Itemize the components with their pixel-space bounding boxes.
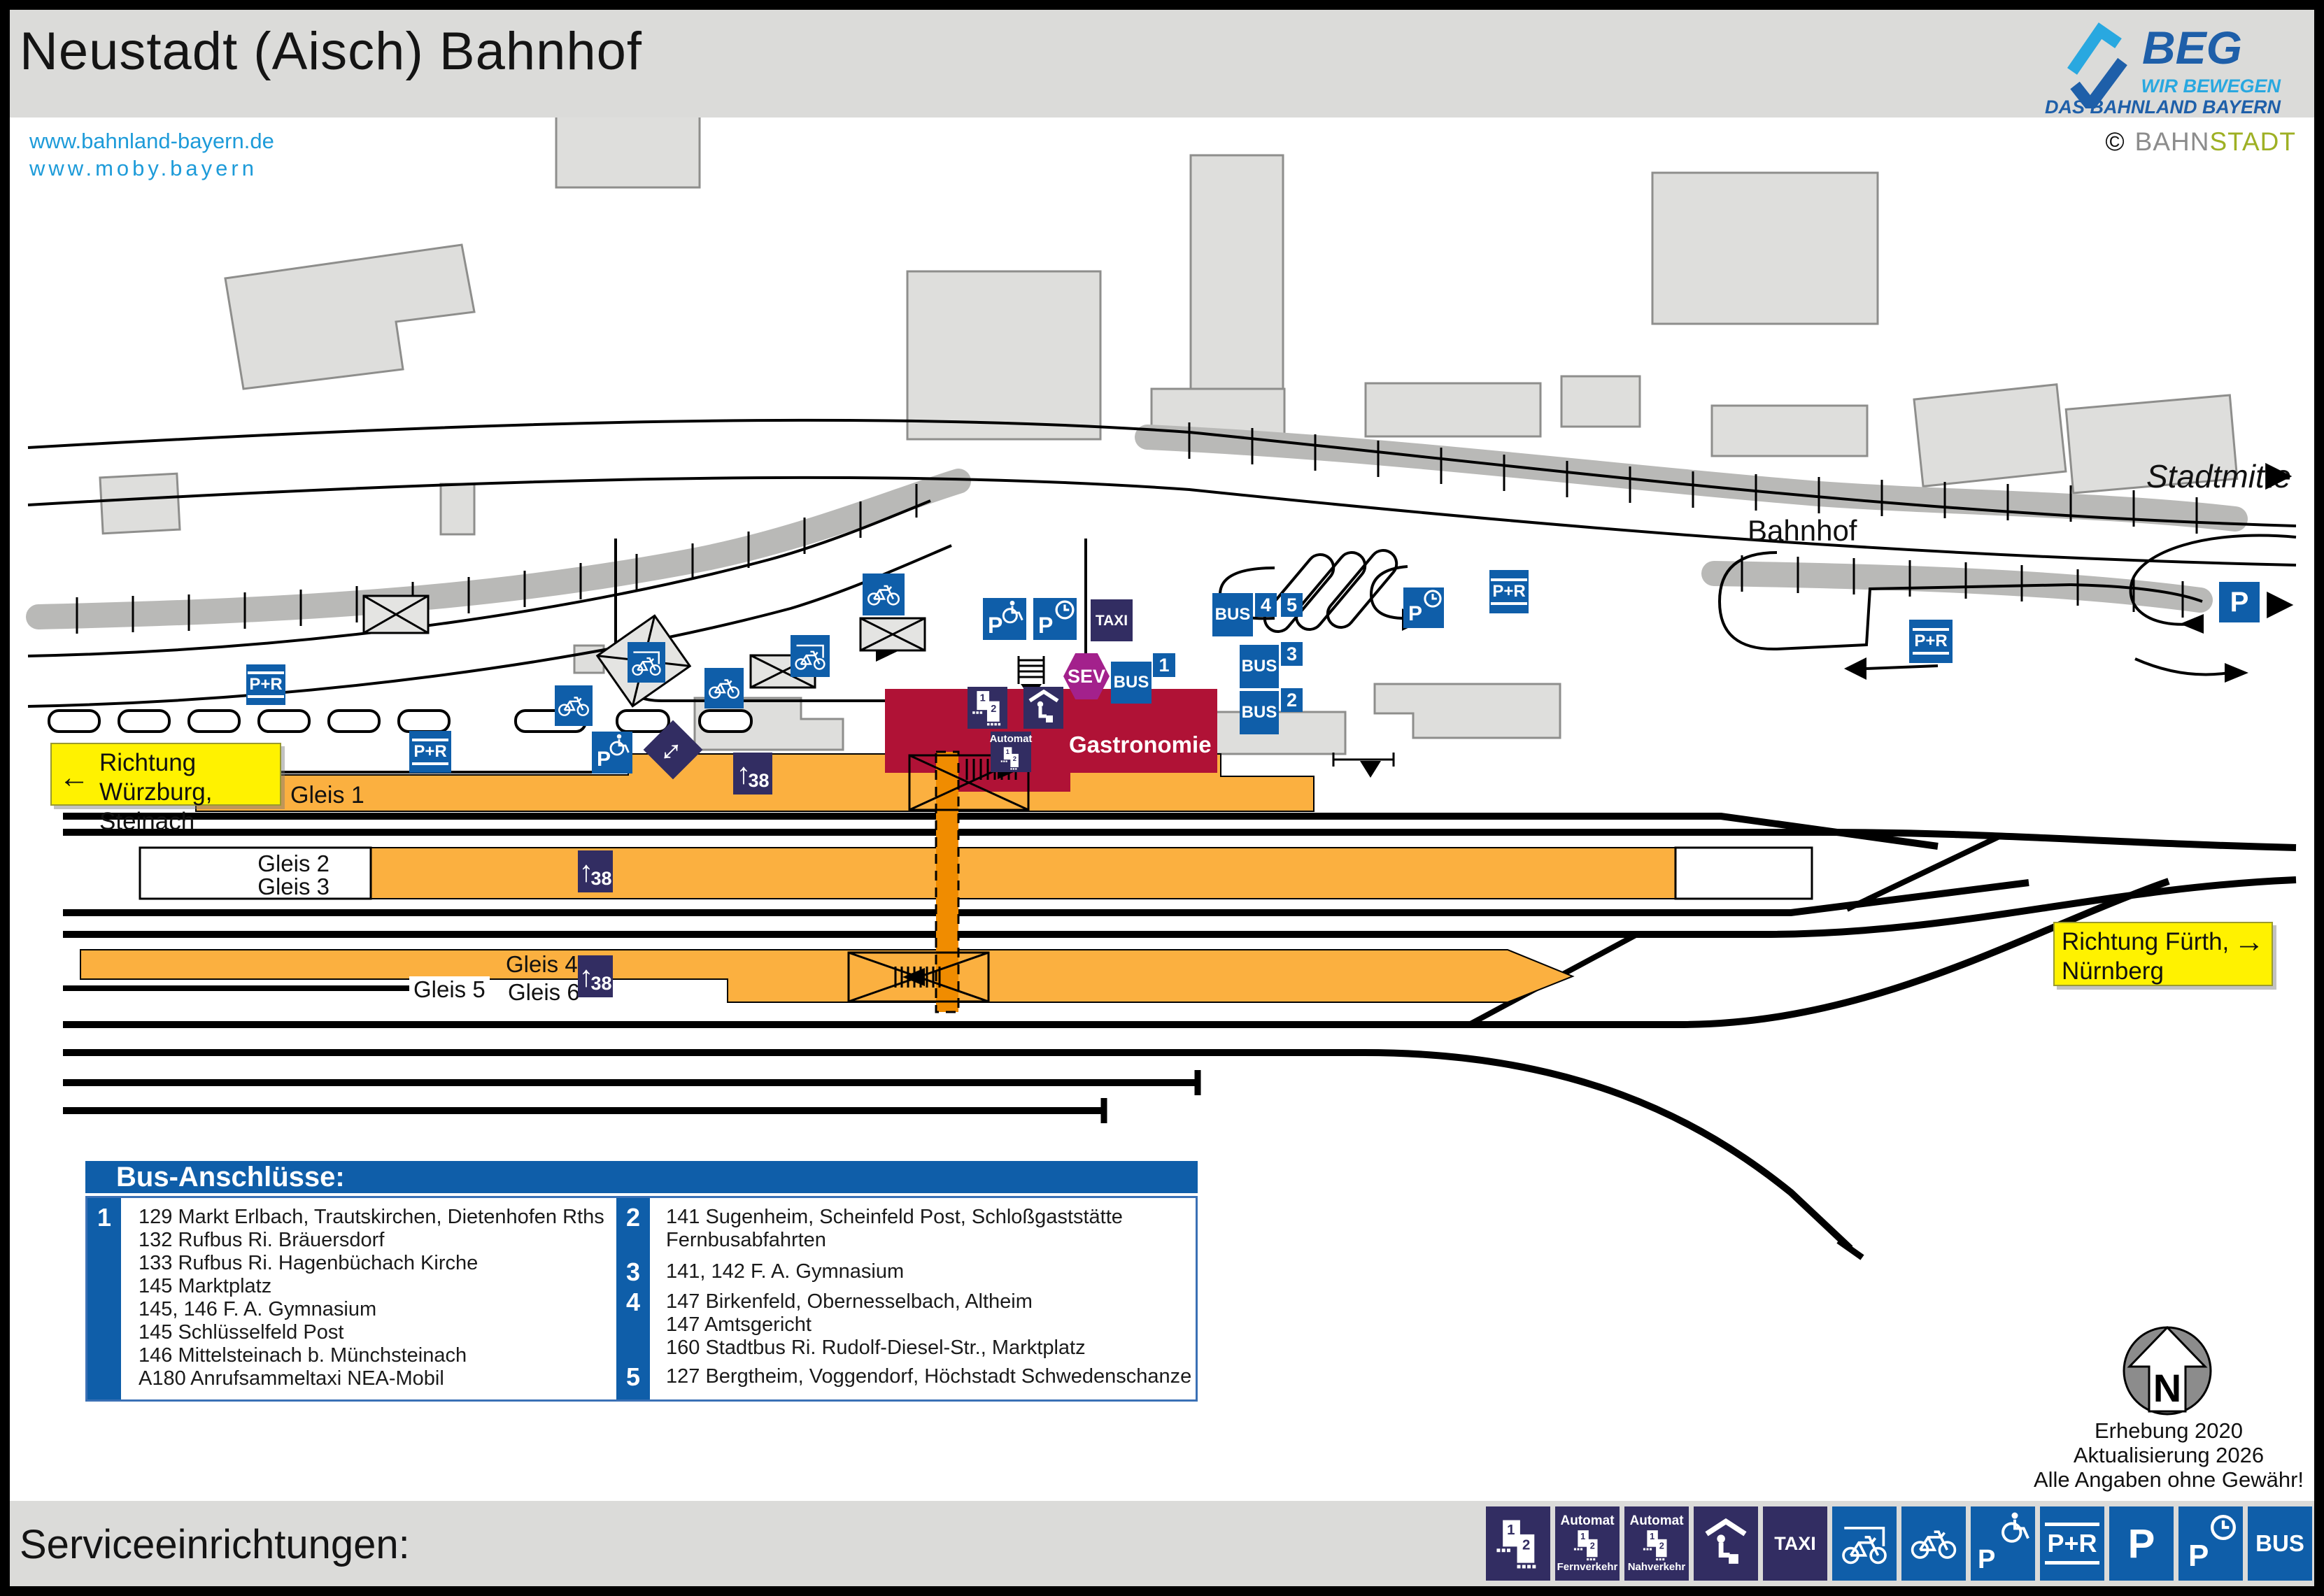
page-title: Neustadt (Aisch) Bahnhof [20, 21, 642, 82]
svg-text:2: 2 [1522, 1538, 1530, 1553]
bus-stop-5-badge: 5 [1281, 593, 1303, 617]
survey-line1: Erhebung 2020 [2029, 1418, 2309, 1443]
parking-icon: P [2109, 1506, 2174, 1581]
platform-access-icon: 1 2 [968, 687, 1007, 729]
building [1191, 155, 1283, 390]
svg-text:2: 2 [1590, 1540, 1595, 1551]
svg-text:2: 2 [1013, 755, 1016, 763]
arrow-right [2225, 663, 2248, 683]
shelter [364, 596, 428, 633]
legend-entry-5: 127 Bergtheim, Voggendorf, Höchstadt Sch… [666, 1365, 1191, 1388]
copyright-symbol: © [2105, 127, 2125, 156]
short-term-parking-icon: P [1403, 587, 1444, 628]
arrow-left [1844, 657, 1866, 680]
building [1561, 376, 1640, 427]
arrow-right-icon: → [2234, 927, 2265, 957]
station-map-page: Neustadt (Aisch) Bahnhof www.bahnland-ba… [0, 0, 2324, 1596]
park-and-ride-icon: P+R [2040, 1506, 2104, 1581]
accessible-parking-icon: P [983, 598, 1026, 640]
gleis3-label: Gleis 3 [143, 875, 330, 898]
legend-entry-3: 141, 142 F. A. Gymnasium [666, 1260, 904, 1283]
shelter [860, 618, 925, 650]
credit-stadt: STADT [2209, 127, 2296, 156]
gleis1-label: Gleis 1 [290, 782, 364, 809]
bus-legend-title-bar: Bus-Anschlüsse: [85, 1161, 1198, 1193]
building [1375, 684, 1560, 738]
gleis23-labels: Gleis 2 Gleis 3 [143, 852, 364, 897]
street-name-label: Bahnhof [1748, 514, 1857, 548]
beg-wordmark: BEG [2142, 21, 2242, 74]
svg-text:1: 1 [979, 693, 985, 704]
svg-text:2: 2 [1659, 1540, 1664, 1551]
gleis6-label: Gleis 6 [508, 979, 580, 1006]
link-moby-bayern[interactable]: www.moby.bayern [29, 155, 274, 182]
bus-stop-2-badge: 2 [1281, 688, 1303, 712]
bike-parking-icon [1901, 1506, 1966, 1581]
building [556, 111, 700, 187]
bahnstadt-credit: ©BAHNSTADT [2105, 127, 2296, 157]
waiting-area-icon [1023, 687, 1063, 729]
bike-parking-icon [555, 685, 593, 726]
gastronomie-label: Gastronomie [1069, 732, 1212, 758]
beg-diamond-icon [2064, 21, 2134, 108]
gleis2-label: Gleis 2 [143, 852, 330, 875]
building [1914, 385, 2066, 487]
hedges [38, 437, 2235, 617]
turn-loop [2135, 659, 2229, 675]
building [225, 245, 474, 389]
svg-text:1: 1 [1580, 1531, 1585, 1541]
legend-entry-4: 147 Birkenfeld, Obernesselbach, Altheim1… [666, 1290, 1086, 1360]
parking-arrow-icon: ▶ [2267, 585, 2293, 620]
bike-parking-icon [863, 573, 905, 615]
street-arrow-line [1866, 666, 1938, 669]
building [1366, 383, 1540, 436]
legend-num-1: 1 [87, 1203, 121, 1232]
svg-text:2: 2 [991, 704, 996, 715]
sign-west-line1: Richtung Würzburg, [99, 748, 273, 807]
svg-text:1: 1 [1650, 1531, 1655, 1541]
gleis4-label: Gleis 4 [506, 951, 578, 978]
stadtmitte-arrow-icon: ▶ [2265, 456, 2292, 491]
legend-entry-2: 141 Sugenheim, Scheinfeld Post, Schloßga… [666, 1206, 1123, 1252]
bus-stop-icon: BUS [1240, 645, 1279, 688]
platform-height-38-icon: ↑38 [578, 955, 613, 997]
parking-icon: P [2219, 582, 2260, 622]
platform-gleis46 [80, 950, 1573, 1002]
platform-island-23 [371, 848, 1675, 899]
website-links: www.bahnland-bayern.de www.moby.bayern [29, 127, 274, 182]
legend-num-5: 5 [616, 1362, 650, 1392]
taxi-stand-icon: TAXI [1763, 1506, 1827, 1581]
building [441, 484, 474, 534]
platform-access-icon: 1 2 [1486, 1506, 1550, 1581]
sign-west-line2: Steinach [99, 807, 194, 836]
direction-sign-east: Richtung Fürth, → Nürnberg [2053, 922, 2273, 986]
legend-num-2: 2 [616, 1203, 650, 1232]
accessible-parking-icon: P [1971, 1506, 2035, 1581]
link-bahnland-bayern[interactable]: www.bahnland-bayern.de [29, 127, 274, 155]
bus-stop-icon: BUS [1240, 691, 1279, 734]
svg-text:1: 1 [1507, 1523, 1515, 1538]
bus-stop-1-badge: 1 [1153, 653, 1175, 677]
building [907, 271, 1100, 439]
platform-uncovered [1675, 848, 1812, 899]
bus-stop-icon: BUS [2248, 1506, 2312, 1581]
bus-stop-icon: BUS [1212, 593, 1253, 636]
north-arrow: N [2118, 1323, 2216, 1422]
ticket-machine-longdistance-icon: Automat 1 2 Fernverkehr [1555, 1506, 1620, 1581]
bus-stop-3-badge: 3 [1281, 642, 1303, 666]
beg-logo: BEG WIR BEWEGEN DAS BAHNLAND BAYERN [2064, 17, 2281, 115]
building [1652, 173, 1878, 324]
survey-line2: Aktualisierung 2026 [2029, 1443, 2309, 1467]
park-and-ride-icon: P+R [409, 731, 451, 773]
bus-stop-4-badge: 4 [1255, 593, 1277, 617]
building [1712, 406, 1867, 456]
beg-tagline-1: WIR BEWEGEN [2141, 76, 2281, 97]
covered-bike-parking-icon [628, 642, 665, 683]
building [100, 473, 180, 534]
accessible-parking-icon: P [592, 732, 632, 774]
short-term-parking-icon: P [1033, 598, 1077, 640]
direction-sign-west: ← Richtung Würzburg, Steinach [50, 743, 281, 806]
svg-text:1: 1 [1006, 748, 1010, 756]
sign-east-line1: Richtung Fürth, [2062, 927, 2229, 957]
legend-entry-1: 129 Markt Erlbach, Trautskirchen, Dieten… [139, 1206, 604, 1390]
survey-line3: Alle Angaben ohne Gewähr! [2029, 1467, 2309, 1492]
gleis5-label: Gleis 5 [409, 976, 490, 1003]
arrow-left-icon: ← [59, 763, 90, 792]
legend-num-4: 4 [616, 1288, 650, 1317]
platform-height-38-icon: ↑38 [733, 753, 772, 795]
taxi-stand-icon: TAXI [1091, 599, 1133, 641]
waiting-area-icon [1694, 1506, 1758, 1581]
parking-slots [49, 711, 751, 732]
park-and-ride-icon: P+R [246, 664, 285, 705]
bus-stop-icon: BUS [1111, 662, 1152, 704]
sign-east-line2: Nürnberg [2062, 957, 2164, 986]
svg-text:N: N [2153, 1366, 2181, 1410]
credit-bahn: BAHN [2135, 127, 2210, 156]
covered-bike-parking-icon [791, 635, 830, 677]
ticket-machine-local-icon: Automat 1 2 Nahverkehr [1624, 1506, 1689, 1581]
short-term-parking-icon: P [2178, 1506, 2243, 1581]
legend-num-3: 3 [616, 1257, 650, 1287]
beg-tagline-2: DAS BAHNLAND BAYERN [2045, 97, 2281, 118]
survey-note: Erhebung 2020 Aktualisierung 2026 Alle A… [2029, 1418, 2309, 1492]
service-icons: 1 2 Automat 1 2 Fernverkehr Automat 1 2 [1486, 1506, 2312, 1581]
ticket-machine-icon: Automat 1 2 [991, 732, 1031, 772]
footer-title: Serviceeinrichtungen: [20, 1521, 410, 1568]
platform-height-38-icon: ↑38 [578, 850, 613, 892]
park-and-ride-icon: P+R [1909, 620, 1953, 663]
bus-legend-title: Bus-Anschlüsse: [116, 1162, 345, 1193]
track-main-a [63, 832, 2296, 848]
park-and-ride-icon: P+R [1489, 570, 1529, 613]
covered-bike-parking-icon [1832, 1506, 1897, 1581]
bike-parking-icon [704, 668, 744, 708]
